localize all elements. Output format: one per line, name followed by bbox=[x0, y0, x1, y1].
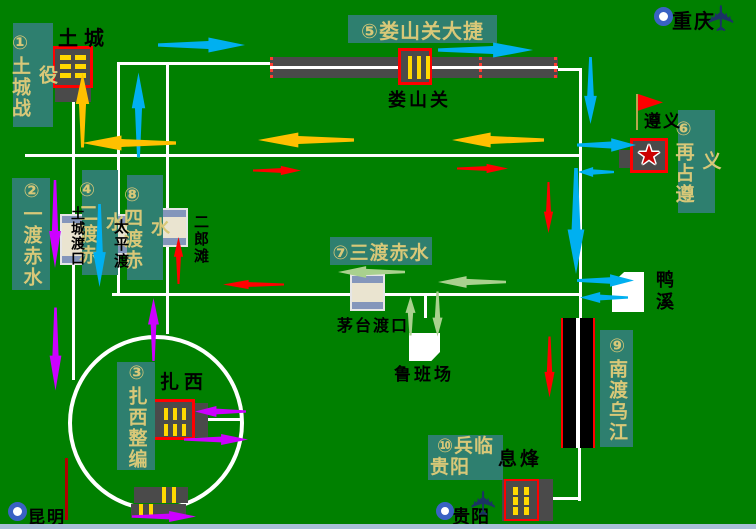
route-arrow-magenta-down bbox=[49, 308, 63, 391]
route-arrow-red-down bbox=[544, 337, 556, 398]
route-arrow-red-right bbox=[457, 163, 508, 174]
label-10-line1: ⑩兵临 bbox=[437, 437, 494, 458]
route-arrow-red-down bbox=[543, 182, 554, 233]
zunyi-star-box: ★ bbox=[630, 138, 668, 173]
building-bars-row bbox=[164, 408, 186, 420]
road-east-vertical-lower bbox=[578, 447, 581, 501]
pass-gate-mark bbox=[479, 57, 482, 78]
road-top bbox=[117, 62, 272, 65]
zhaxi-building-flap bbox=[195, 403, 208, 437]
route-arrow-cyan-left bbox=[578, 166, 614, 178]
label-10-line2: 贵阳 bbox=[430, 458, 470, 479]
guiyang-airplane-icon: ✈ bbox=[467, 489, 501, 518]
route-arrow-cyan-down bbox=[583, 57, 598, 124]
pass-gate-mark bbox=[554, 57, 557, 78]
building-windows bbox=[513, 487, 529, 516]
label-2-first-crossing: ②一渡赤水 bbox=[12, 178, 50, 290]
lubanchang-town-shape bbox=[409, 333, 440, 361]
building-bars-row bbox=[164, 424, 186, 436]
route-arrow-orange-left bbox=[452, 131, 544, 149]
label-5-loushanguan-victory: ⑤娄山关大捷 bbox=[348, 15, 497, 43]
route-arrow-red-left bbox=[223, 279, 284, 290]
route-arrow-orange-left bbox=[258, 131, 354, 149]
place-yaxi: 鸭溪 bbox=[651, 270, 677, 314]
gate-bars bbox=[408, 56, 430, 79]
chongqing-airplane-icon: ✈ bbox=[704, 3, 740, 33]
zhaxi-building-icon bbox=[152, 399, 195, 440]
barracks-bar bbox=[162, 487, 166, 503]
route-arrow-green-left bbox=[438, 275, 506, 289]
route-arrow-orange-left bbox=[82, 134, 176, 152]
road-maotai-horizontal bbox=[112, 293, 580, 296]
pass-gate-mark bbox=[270, 57, 273, 78]
route-arrow-red-right bbox=[253, 165, 301, 176]
loushanguan-gate-icon bbox=[398, 48, 432, 85]
place-xifeng: 息烽 bbox=[498, 444, 542, 471]
label-9-south-cross-wujiang: ⑨南渡乌江 bbox=[600, 330, 633, 447]
place-maotai-ferry: 茅台渡口 bbox=[337, 312, 409, 336]
red-star-icon: ★ bbox=[637, 142, 661, 169]
route-arrow-cyan-down bbox=[566, 168, 586, 274]
road-lubanchang-stub bbox=[424, 296, 427, 318]
barracks-bar bbox=[172, 487, 176, 503]
maotai-ferry-icon bbox=[352, 276, 383, 309]
road-middle-horizontal bbox=[25, 154, 582, 157]
zunyi-flag-pole bbox=[636, 94, 638, 130]
road-east-vertical bbox=[579, 68, 582, 320]
place-loushanguan: 娄山关 bbox=[388, 86, 451, 112]
label-10-approach-guiyang: ⑩兵临 贵阳 bbox=[428, 435, 503, 480]
bottom-edge-strip bbox=[0, 524, 756, 529]
route-arrow-green-down bbox=[432, 292, 444, 337]
barracks-slab-top bbox=[134, 487, 188, 503]
place-tucheng-ferry: 土城渡口 bbox=[66, 206, 86, 266]
route-arrow-magenta-down bbox=[48, 180, 62, 268]
wujiang-river bbox=[561, 318, 595, 448]
label-1-tucheng-battle: ①土城战役 bbox=[13, 23, 53, 127]
chongqing-city-marker-icon bbox=[654, 7, 673, 26]
label-6-retake-zunyi: ⑥再占遵义 bbox=[678, 110, 715, 213]
place-erlangtan: 二郎滩 bbox=[190, 214, 211, 265]
place-lubanchang: 鲁班场 bbox=[394, 360, 454, 385]
guiyang-city-marker-icon bbox=[436, 502, 454, 520]
road-xifeng-link bbox=[550, 497, 581, 500]
kunming-city-marker-icon bbox=[8, 502, 27, 521]
label-8-fourth-crossing: ⑧四渡赤水 bbox=[127, 175, 163, 280]
campaign-map: ★ ①土城战役 ②一渡赤水 ③扎西整编 ④二渡赤水 ⑤娄山关大捷 ⑥再占遵义 ⑦… bbox=[0, 0, 756, 529]
xifeng-building-icon bbox=[504, 479, 539, 521]
place-tucheng: 土城 bbox=[58, 22, 110, 51]
place-zunyi: 遵义 bbox=[644, 107, 682, 132]
place-zhaxi: 扎西 bbox=[160, 367, 208, 394]
place-taipingdu: 太平渡 bbox=[110, 219, 131, 270]
label-7-third-crossing: ⑦三渡赤水 bbox=[330, 237, 432, 265]
route-arrow-cyan-right bbox=[158, 36, 245, 54]
kunming-red-line bbox=[65, 458, 68, 520]
label-3-zhaxi-reorg: ③扎西整编 bbox=[117, 362, 155, 470]
